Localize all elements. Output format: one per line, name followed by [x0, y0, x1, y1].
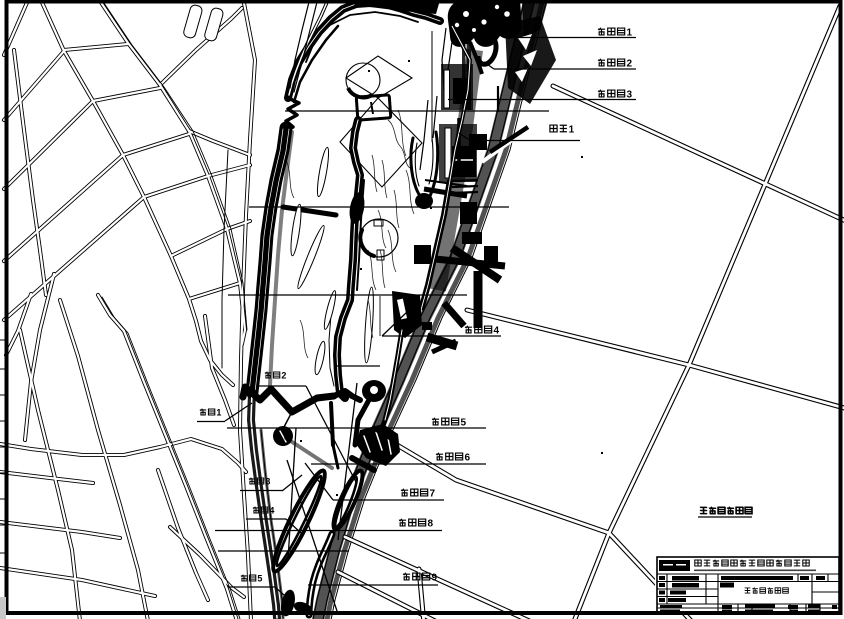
svg-text:3: 3 — [627, 89, 633, 100]
svg-text:4: 4 — [269, 506, 274, 516]
svg-text:5: 5 — [461, 417, 467, 428]
svg-text:5: 5 — [257, 574, 262, 584]
svg-text:8: 8 — [428, 518, 434, 529]
svg-text:2: 2 — [281, 371, 286, 381]
svg-text:1: 1 — [569, 124, 575, 135]
svg-text:2: 2 — [627, 58, 633, 69]
svg-text:3: 3 — [265, 477, 270, 487]
svg-text:1: 1 — [627, 27, 633, 38]
svg-text:7: 7 — [430, 488, 436, 499]
svg-text:6: 6 — [465, 452, 471, 463]
svg-text:4: 4 — [494, 325, 500, 336]
svg-text:1: 1 — [216, 408, 221, 418]
svg-text:9: 9 — [432, 572, 438, 583]
